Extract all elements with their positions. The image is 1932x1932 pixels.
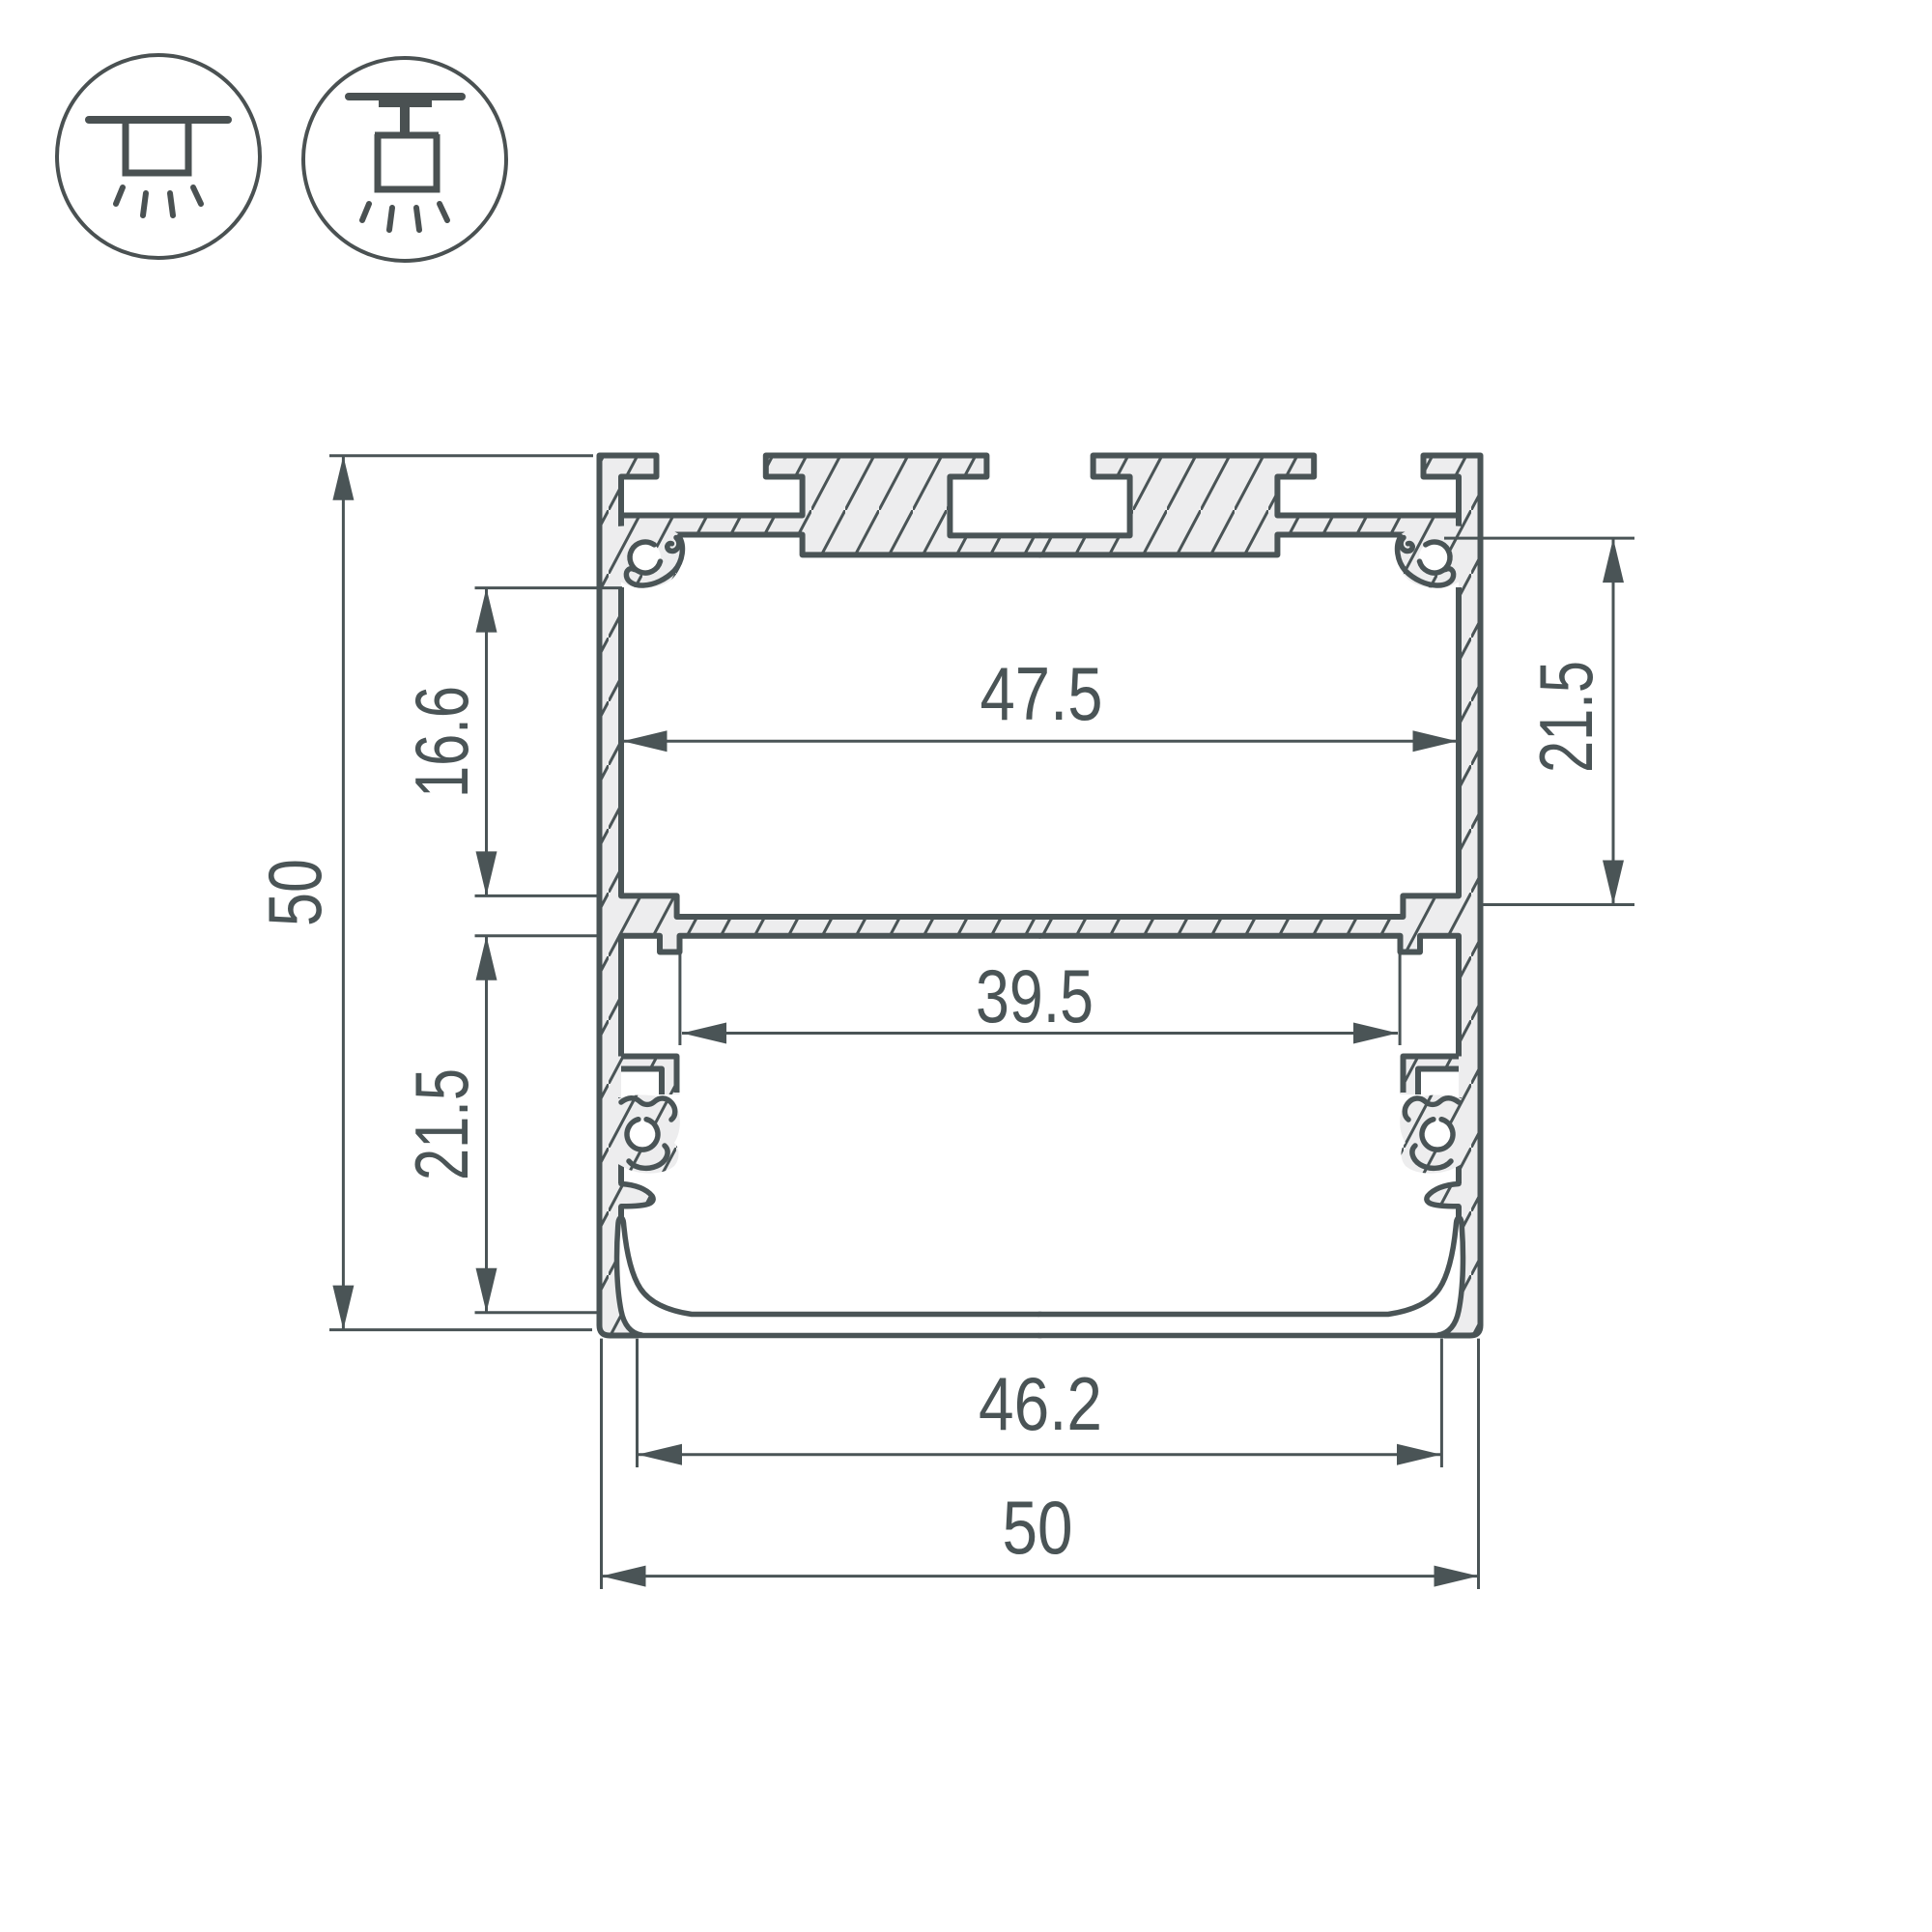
- svg-text:21.5: 21.5: [1523, 661, 1608, 773]
- svg-text:50: 50: [252, 859, 337, 926]
- svg-text:39.5: 39.5: [976, 953, 1094, 1038]
- svg-text:47.5: 47.5: [980, 651, 1103, 736]
- svg-text:21.5: 21.5: [399, 1068, 484, 1180]
- svg-text:50: 50: [1003, 1485, 1073, 1570]
- svg-text:46.2: 46.2: [979, 1361, 1102, 1446]
- svg-text:16.6: 16.6: [399, 686, 484, 798]
